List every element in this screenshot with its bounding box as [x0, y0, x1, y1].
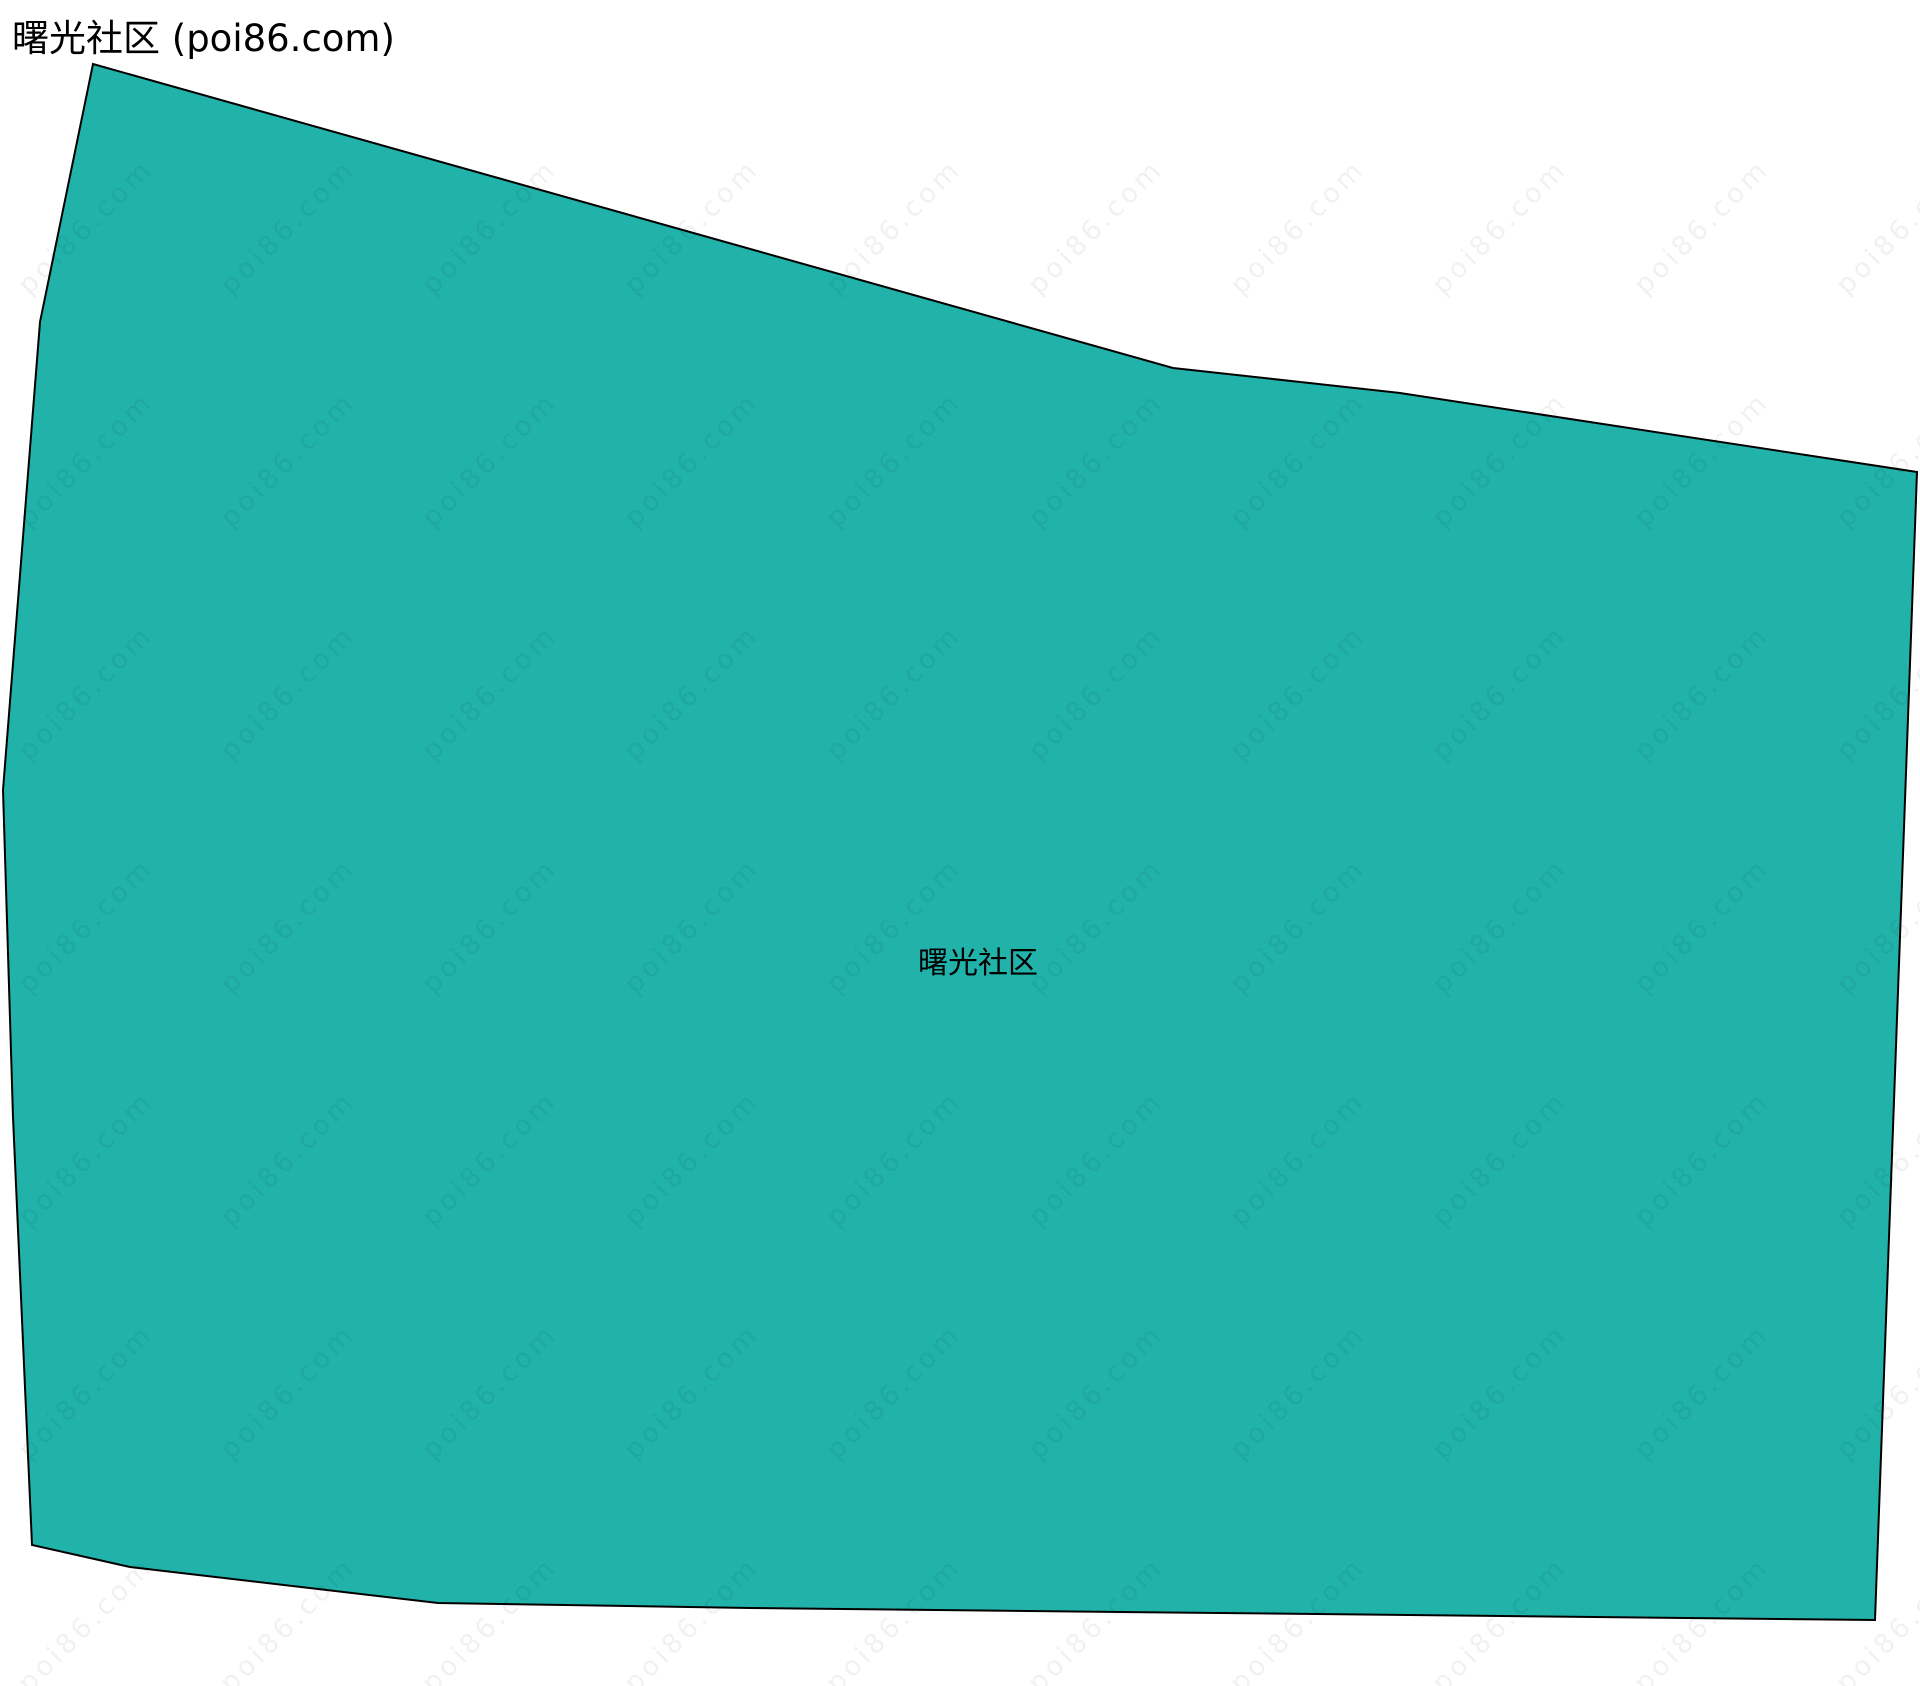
page-title: 曙光社区 (poi86.com) [12, 8, 395, 62]
region-map-svg [0, 0, 1920, 1686]
region-polygon [3, 64, 1917, 1620]
map-canvas: poi86.compoi86.compoi86.compoi86.compoi8… [0, 0, 1920, 1686]
region-label: 曙光社区 [918, 938, 1038, 982]
